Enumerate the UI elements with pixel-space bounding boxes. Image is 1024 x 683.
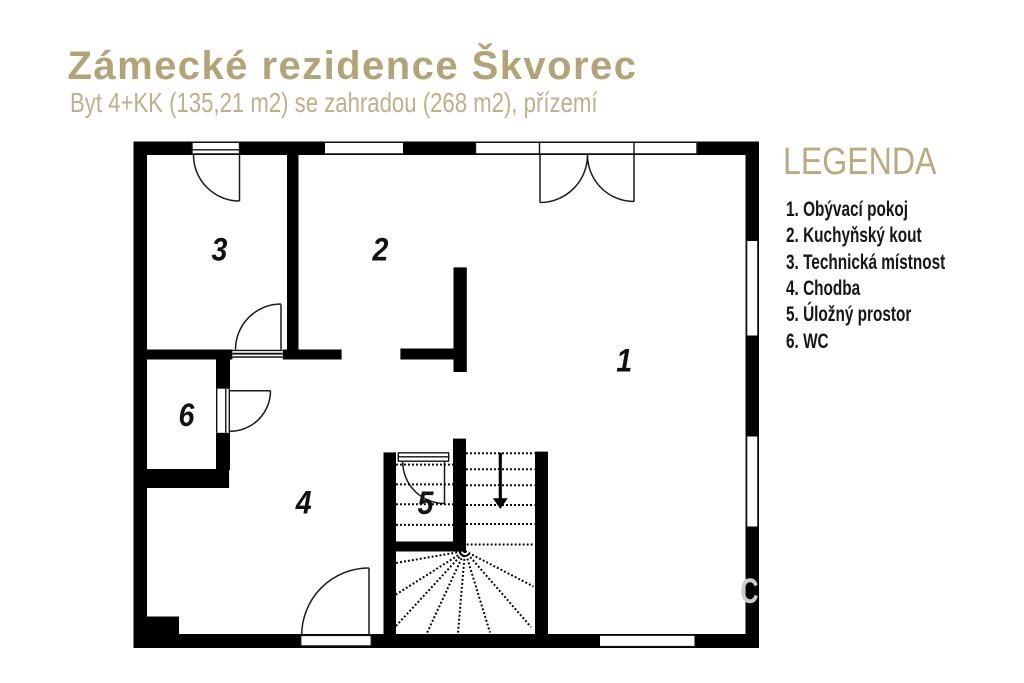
svg-text:C: C	[740, 572, 758, 611]
svg-text:1: 1	[616, 343, 632, 379]
svg-text:4: 4	[295, 485, 312, 521]
svg-text:2: 2	[372, 232, 389, 268]
svg-text:3: 3	[212, 232, 228, 268]
svg-text:6: 6	[178, 397, 195, 433]
svg-text:5: 5	[418, 485, 435, 521]
